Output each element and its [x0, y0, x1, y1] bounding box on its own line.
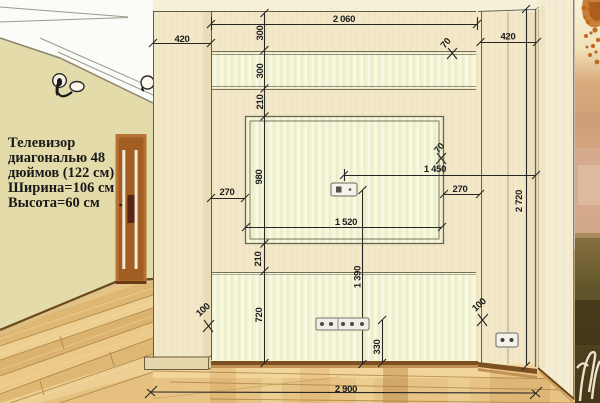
svg-text:2 900: 2 900 [335, 384, 357, 395]
svg-text:1 520: 1 520 [335, 217, 357, 228]
svg-text:дюймов (122 см): дюймов (122 см) [8, 165, 114, 181]
svg-text:300: 300 [255, 26, 266, 41]
svg-text:2 060: 2 060 [333, 14, 355, 25]
svg-text:диагональю 48: диагональю 48 [8, 150, 105, 166]
svg-text:210: 210 [255, 95, 266, 110]
svg-text:300: 300 [255, 64, 266, 79]
svg-text:1 450: 1 450 [424, 164, 446, 175]
svg-text:1 390: 1 390 [353, 266, 364, 288]
svg-text:420: 420 [501, 32, 516, 43]
svg-text:Ширина=106 см: Ширина=106 см [8, 180, 114, 196]
svg-text:720: 720 [254, 308, 265, 323]
svg-text:210: 210 [253, 252, 264, 267]
svg-text:2 720: 2 720 [514, 190, 525, 212]
svg-text:420: 420 [175, 34, 190, 45]
svg-text:330: 330 [372, 340, 383, 355]
svg-text:980: 980 [254, 170, 265, 185]
svg-text:270: 270 [453, 184, 468, 195]
svg-text:Высота=60 см: Высота=60 см [8, 195, 100, 211]
svg-text:270: 270 [220, 187, 235, 198]
svg-text:Телевизор: Телевизор [8, 135, 75, 151]
